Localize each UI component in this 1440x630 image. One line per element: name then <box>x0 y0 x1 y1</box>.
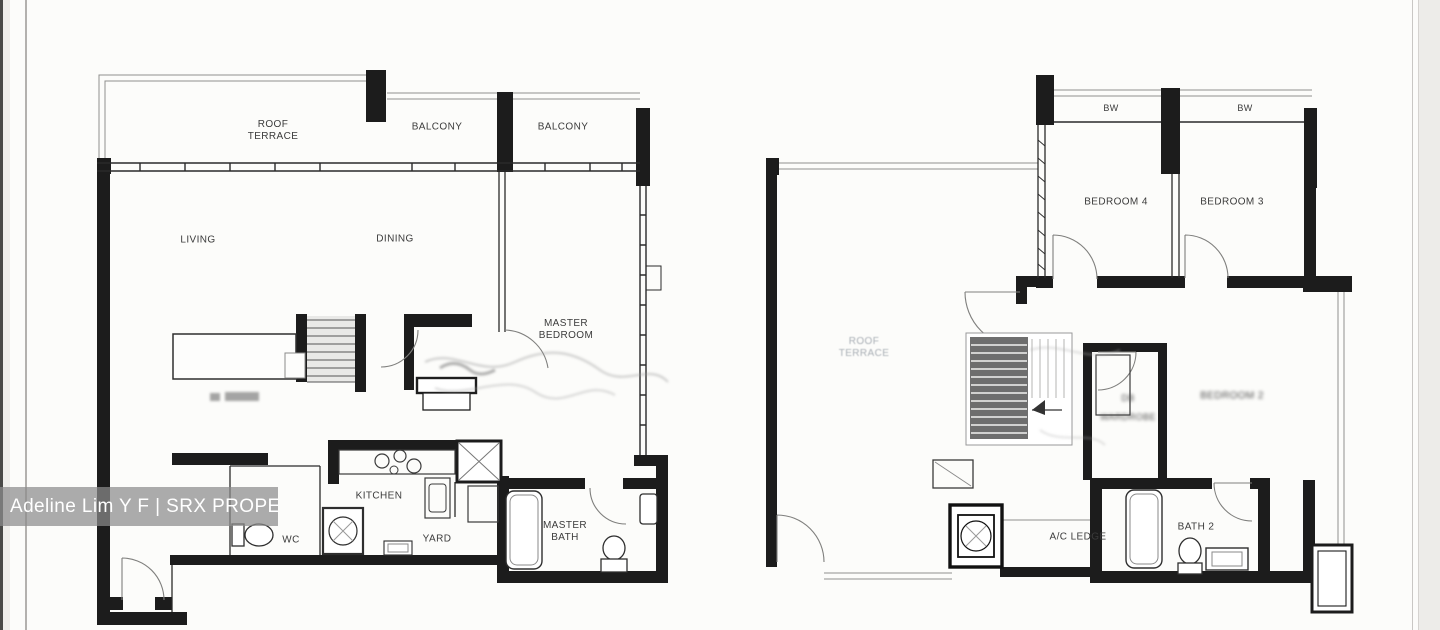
left-plan-stairs <box>307 316 355 382</box>
room-label-bedroom-3: BEDROOM 3 <box>1200 197 1264 208</box>
left-plan-shaft <box>457 441 501 482</box>
right-plan-corner-block <box>1312 545 1352 612</box>
room-label-bedroom-4: BEDROOM 4 <box>1084 197 1148 208</box>
floorplan-drawing <box>0 0 1440 630</box>
right-plan-walls <box>766 75 1352 583</box>
room-label-wc: WC <box>282 535 299 546</box>
room-label-roof-terrace-right: ROOF TERRACE <box>829 336 899 360</box>
agent-watermark: Adeline Lim Y F | SRX PROPERTY <box>0 487 278 526</box>
room-label-kitchen: KITCHEN <box>356 491 403 502</box>
room-label-bedroom-2-blurred: BEDROOM 2 <box>1200 391 1264 402</box>
left-plan-cabinet <box>173 334 305 379</box>
room-label-bath-2: BATH 2 <box>1178 522 1215 533</box>
room-label-master-bedroom: MASTER BEDROOM <box>530 318 602 342</box>
room-label-roof-terrace-left: ROOF TERRACE <box>241 119 305 143</box>
left-plan-bench <box>417 378 476 410</box>
room-label-master-bath: MASTER BATH <box>535 520 595 544</box>
room-label-dining: DINING <box>376 234 413 245</box>
room-label-db-blurred: DB <box>1121 393 1134 403</box>
room-label-ac-ledge: A/C LEDGE <box>1050 532 1107 543</box>
room-label-wardrobe-blurred: WARDROBE <box>1100 412 1156 422</box>
floorplan-page: ROOF TERRACE BALCONY BALCONY LIVING DINI… <box>0 0 1440 630</box>
right-plan-stairs <box>966 333 1072 445</box>
right-plan-ac-unit <box>950 505 1002 567</box>
room-label-balcony-2: BALCONY <box>538 122 589 133</box>
left-plan-window-wall <box>97 163 661 455</box>
room-label-yard: YARD <box>423 534 452 545</box>
room-label-living: LIVING <box>180 235 215 246</box>
room-label-bw-1: BW <box>1103 103 1118 113</box>
room-label-bw-2: BW <box>1237 103 1252 113</box>
room-label-balcony-1: BALCONY <box>412 122 463 133</box>
